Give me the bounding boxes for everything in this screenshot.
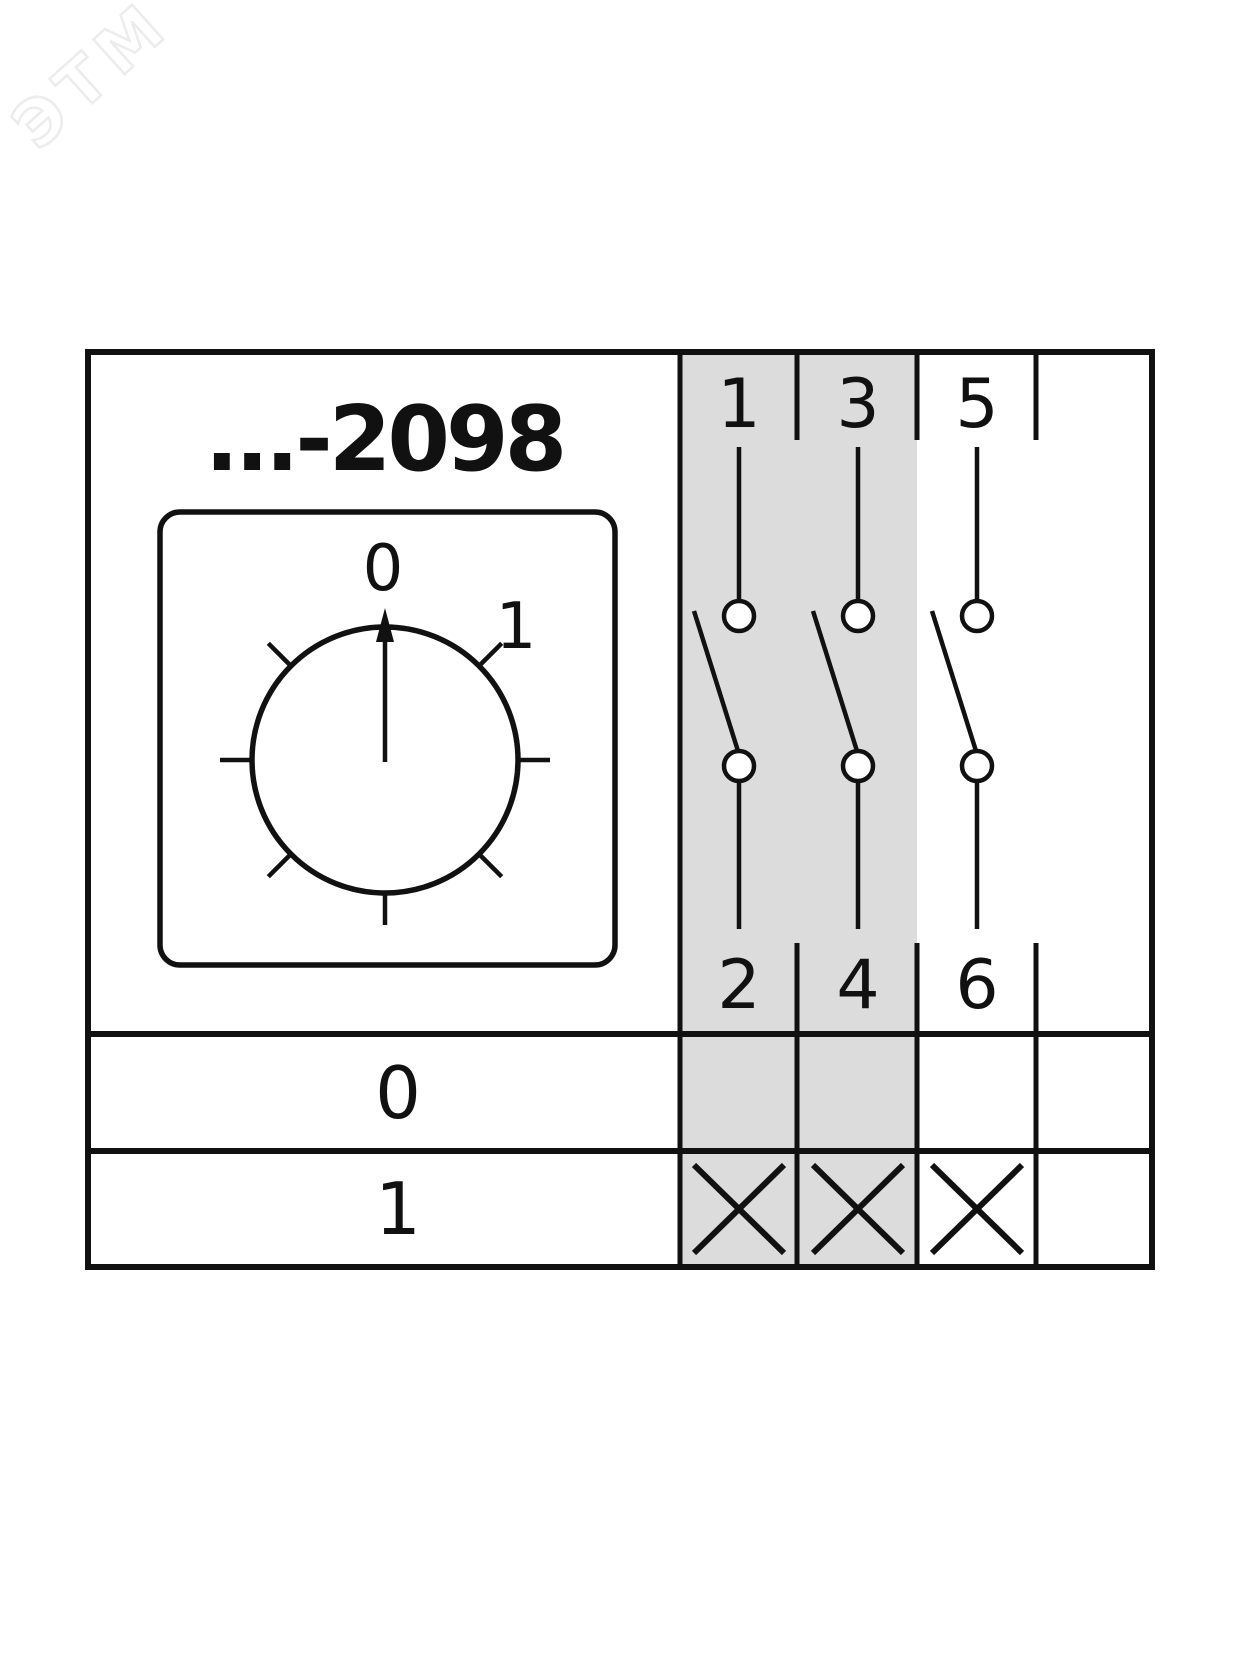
terminal-label-top: 3 — [836, 365, 879, 444]
dial-tick — [268, 643, 291, 666]
watermark: ЭТМ — [0, 0, 269, 164]
contact-point — [962, 751, 992, 781]
contact-point — [724, 601, 754, 631]
terminal-label-bottom: 6 — [955, 946, 998, 1025]
dial-pointer-icon — [376, 608, 394, 762]
product-title: ...-2098 — [205, 387, 563, 492]
position-row-label-0: 0 — [375, 1051, 421, 1135]
contact-pole-5-6: 5 6 — [932, 365, 999, 1025]
switch-dial: 0 1 — [160, 512, 615, 965]
dial-position-label-1: 1 — [496, 590, 537, 664]
striped-globe-icon — [159, 0, 267, 14]
contact-blade-open — [932, 611, 976, 751]
contact-point — [843, 751, 873, 781]
dial-position-label-0: 0 — [363, 532, 404, 606]
position-row-label-1: 1 — [375, 1167, 421, 1251]
dial-tick — [479, 854, 502, 877]
switch-diagram: ЭТМ .. — [0, 0, 1240, 1653]
closed-contact-mark — [932, 1165, 1022, 1253]
watermark-text: ЭТМ — [0, 0, 186, 164]
contact-point — [724, 751, 754, 781]
terminal-label-top: 5 — [955, 365, 998, 444]
terminal-label-bottom: 2 — [717, 946, 760, 1025]
contact-point — [843, 601, 873, 631]
terminal-label-bottom: 4 — [836, 946, 879, 1025]
dial-tick — [268, 854, 291, 877]
contact-point — [962, 601, 992, 631]
terminal-label-top: 1 — [717, 365, 760, 444]
